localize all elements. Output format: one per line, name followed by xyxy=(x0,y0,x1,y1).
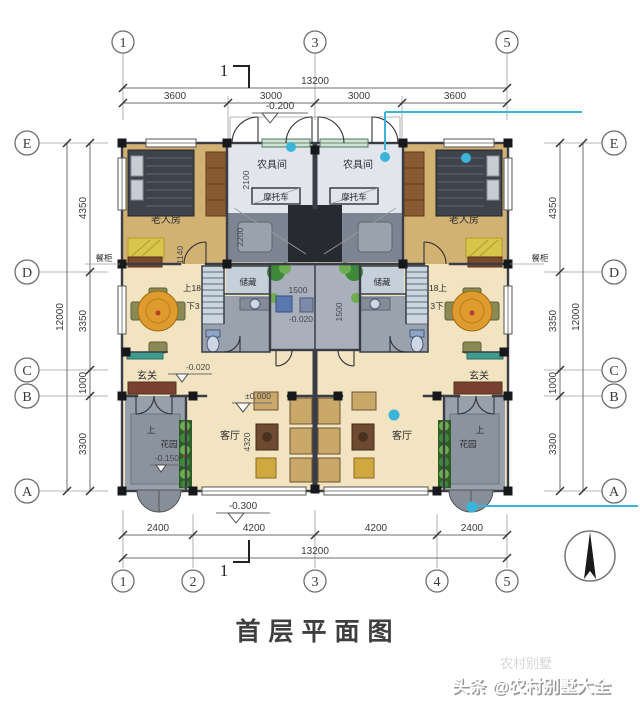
sink xyxy=(370,299,380,309)
floor-plan-sheet: 1 3 5 13200 3600 3000 3000 3600 1 -0.200… xyxy=(0,0,640,705)
dim-seg: 4350 xyxy=(78,196,89,219)
bottom-dimensions: 2400 4200 4200 2400 13200 1 2 3 4 5 1 -0… xyxy=(112,501,518,592)
dim-seg: 3350 xyxy=(78,309,89,332)
washing-machine xyxy=(276,296,292,312)
sofa xyxy=(290,398,312,424)
section-label-top: 1 xyxy=(220,61,229,80)
bedroom-left-label: 老人房 xyxy=(151,213,181,226)
dim-seg: 2400 xyxy=(461,523,484,534)
dim-parking-depth: 2200 xyxy=(235,227,245,246)
axis-label: 1 xyxy=(120,36,127,51)
watermark: 农村别墅 头条@农村别墅大全 头条@农村别墅大全 xyxy=(452,656,613,698)
axis-label: E xyxy=(610,137,619,152)
sofa xyxy=(318,428,340,454)
cupboard-label-left: 餐柜 xyxy=(95,253,113,263)
storage-right-label: 储藏 xyxy=(373,277,391,287)
dim-seg: 4200 xyxy=(243,523,266,534)
motorcycle-right-label: 摩托车 xyxy=(341,192,367,202)
axis-label: B xyxy=(22,390,31,405)
drain-dot xyxy=(380,152,390,162)
dresser-right xyxy=(468,257,502,267)
stair-up-right-label: 18上 xyxy=(429,283,447,293)
foyer-right-label: 玄关 xyxy=(469,369,489,382)
north-arrow xyxy=(565,531,615,581)
sofa xyxy=(290,458,312,482)
axis-label: 2 xyxy=(190,575,197,590)
level-living: ±0.000 xyxy=(245,391,271,401)
stair-right xyxy=(406,266,428,324)
level-foyer: -0.020 xyxy=(186,362,210,372)
axis-label: C xyxy=(609,364,618,379)
dim-total-right: 12000 xyxy=(571,303,582,331)
cupboard-label-right: 餐柜 xyxy=(531,253,549,263)
level-symbol xyxy=(228,513,244,523)
dim-court-width: 1500 xyxy=(289,285,308,295)
axis-label: 4 xyxy=(434,575,441,590)
section-mark-top xyxy=(233,66,249,88)
right-dimensions: E D C B A 4350 3350 1000 3300 12000 餐柜 xyxy=(510,131,626,503)
kettle xyxy=(358,432,368,442)
pillow xyxy=(487,156,499,176)
porch-up-right-label: 上 xyxy=(476,425,485,435)
axis-label: C xyxy=(22,364,31,379)
stair-down-right-label: 3下 xyxy=(430,301,444,311)
dim-seg: 3350 xyxy=(548,309,559,332)
shoe-cabinet-left xyxy=(127,352,163,359)
stair-down-left-label: 下3 xyxy=(186,301,200,311)
porch-up-left-label: 上 xyxy=(147,425,156,435)
dim-total-left: 12000 xyxy=(55,303,66,331)
axis-label: D xyxy=(22,266,32,281)
left-dimensions: E D C B A 12000 4350 3350 1000 3300 餐柜 xyxy=(15,131,120,503)
ottoman xyxy=(354,458,374,478)
watermark-ghost: 农村别墅 xyxy=(500,656,552,671)
drawing-title: 首层平面图 xyxy=(235,617,400,646)
dim-total-top: 13200 xyxy=(301,76,329,87)
storage-left-label: 储藏 xyxy=(239,277,257,287)
core-dark-block xyxy=(288,205,342,262)
dim-seg: 4350 xyxy=(548,196,559,219)
dim-seg: 3600 xyxy=(164,91,187,102)
door-mat-right xyxy=(454,382,502,394)
axis-label: A xyxy=(609,485,620,500)
entry-fan-left xyxy=(137,490,159,512)
drain-dot xyxy=(286,142,296,152)
motorcycle-right-shape xyxy=(358,222,392,252)
stair-left xyxy=(202,266,224,324)
sofa xyxy=(318,398,340,424)
drain-dot xyxy=(467,502,478,513)
sofa xyxy=(290,428,312,454)
level-garden: -0.150 xyxy=(155,453,179,463)
watermark-text: 头条@农村别墅大全 xyxy=(452,676,612,696)
motorcycle-left-label: 摩托车 xyxy=(263,192,289,202)
level-court: -0.020 xyxy=(289,314,313,324)
washing-machine xyxy=(300,298,313,312)
pillow xyxy=(487,180,499,200)
axis-label: B xyxy=(609,390,618,405)
dim-seg: 1000 xyxy=(78,371,89,394)
shoe-cabinet-right xyxy=(467,352,503,359)
toolroom-left-label: 农具间 xyxy=(257,158,287,171)
top-dimensions: 1 3 5 13200 3600 3000 3000 3600 1 -0.200 xyxy=(112,31,518,138)
dim-court-depth: 1500 xyxy=(334,302,344,321)
axis-label: 5 xyxy=(504,36,511,51)
porch-right-step xyxy=(450,414,499,484)
dim-seg: 3300 xyxy=(548,432,559,455)
dim-hall-width: 1140 xyxy=(175,246,185,265)
stair-up-left-label: 上18 xyxy=(183,283,201,293)
toilet xyxy=(207,336,219,352)
level-front-step: -0.300 xyxy=(229,501,258,512)
dim-seg: 1000 xyxy=(548,371,559,394)
level-symbol xyxy=(262,113,278,123)
axis-label: 5 xyxy=(504,575,511,590)
dim-toolroom-depth: 2100 xyxy=(241,170,251,189)
door-mat-left xyxy=(128,382,176,394)
garden-left-label: 花园 xyxy=(160,439,177,449)
dim-seg: 3000 xyxy=(348,91,371,102)
sofa xyxy=(318,458,340,482)
bed-left xyxy=(128,150,194,216)
axis-label: D xyxy=(609,266,619,281)
dim-seg: 2400 xyxy=(147,523,170,534)
dim-total-bottom: 13200 xyxy=(301,546,329,557)
foyer-left-label: 玄关 xyxy=(137,369,157,382)
axis-label: 3 xyxy=(312,36,319,51)
dim-living-depth: 4320 xyxy=(242,432,252,451)
pillow xyxy=(131,180,143,200)
pillow xyxy=(131,156,143,176)
section-label-bottom: 1 xyxy=(220,561,229,580)
dim-seg: 3300 xyxy=(78,432,89,455)
porch-left-step xyxy=(131,414,180,484)
level-portico: -0.200 xyxy=(266,101,295,112)
armchair xyxy=(352,392,376,410)
toilet xyxy=(411,336,423,352)
party-wall xyxy=(313,350,318,491)
bedroom-right-label: 老人房 xyxy=(449,213,479,226)
section-mark-bottom xyxy=(233,540,249,562)
dim-seg: 3600 xyxy=(444,91,467,102)
axis-label: E xyxy=(23,137,32,152)
entry-fan-left xyxy=(159,490,181,512)
drain-dot xyxy=(389,410,400,421)
living-right-label: 客厅 xyxy=(392,429,412,442)
toolroom-right-label: 农具间 xyxy=(343,158,373,171)
dim-seg: 4200 xyxy=(365,523,388,534)
drain-dot xyxy=(461,153,471,163)
ottoman xyxy=(256,458,276,478)
dresser-left xyxy=(128,257,162,267)
axis-label: A xyxy=(22,485,33,500)
living-left-label: 客厅 xyxy=(220,429,240,442)
kettle xyxy=(262,432,272,442)
axis-label: 3 xyxy=(312,575,319,590)
sink xyxy=(250,299,260,309)
garden-right-label: 花园 xyxy=(459,439,476,449)
axis-label: 1 xyxy=(120,575,127,590)
